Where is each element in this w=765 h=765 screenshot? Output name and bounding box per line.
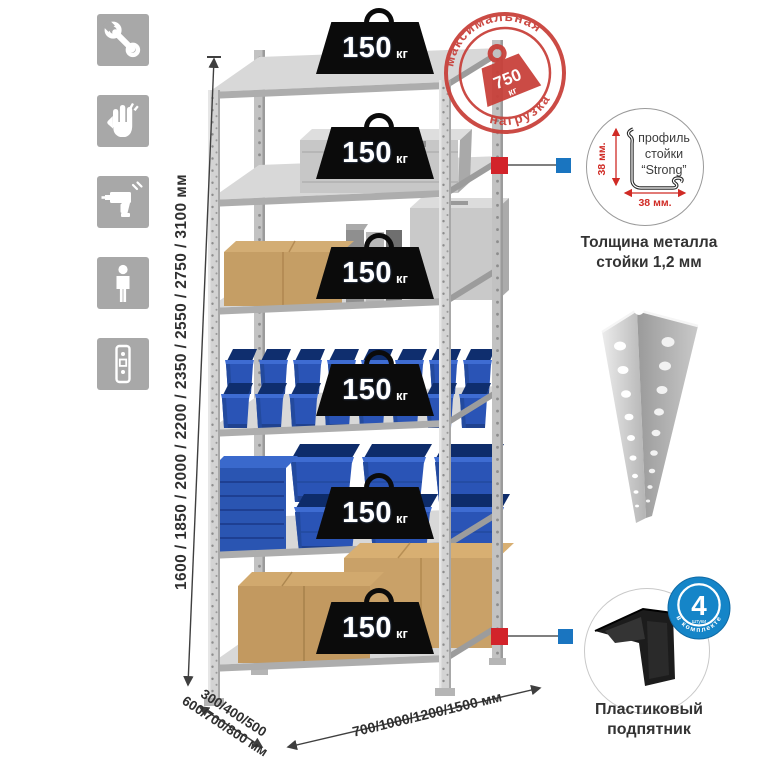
feature-tile-drill	[97, 176, 149, 228]
shelf-load-badge: 150 кг	[316, 364, 434, 416]
weight-icon: 150 кг	[316, 22, 434, 74]
load-unit: кг	[396, 626, 408, 641]
load-unit: кг	[396, 271, 408, 286]
weight-icon: 150 кг	[316, 127, 434, 179]
height-dimensions-label: 1600 / 1850 / 2000 / 2200 / 2350 / 2550 …	[173, 82, 193, 682]
profile-word1: профиль	[638, 131, 690, 145]
feature-tile-assembly	[97, 14, 149, 66]
foot-caption: Пластиковый подпятник	[556, 700, 742, 741]
weight-icon: 150 кг	[316, 602, 434, 654]
product-infographic: 150 кг 150 кг 150 кг 150 кг 150 кг	[0, 0, 765, 765]
load-value: 150	[342, 257, 392, 290]
callout-lines	[508, 165, 558, 636]
shelf-load-badge: 150 кг	[316, 127, 434, 179]
shelf-load-badge: 150 кг	[316, 247, 434, 299]
post-front-left	[204, 90, 224, 706]
weight-icon: 150 кг	[316, 247, 434, 299]
feature-tile-post	[97, 338, 149, 390]
load-value: 150	[342, 32, 392, 65]
drill-icon	[98, 177, 148, 227]
profile-word3: “Strong”	[641, 163, 686, 177]
profile-caption-line2: стойки 1,2 мм	[596, 254, 701, 271]
gloves-icon	[98, 96, 148, 146]
shelf-load-badge: 150 кг	[316, 22, 434, 74]
profile-dim-horizontal: 38 мм.	[638, 197, 671, 209]
load-value: 150	[342, 374, 392, 407]
rack-post-icon	[98, 339, 148, 389]
profile-word2: стойки	[645, 147, 683, 161]
wrench-icon	[98, 15, 148, 65]
weight-icon: 150 кг	[316, 364, 434, 416]
profile-dim-vertical: 38 мм.	[596, 142, 608, 175]
load-unit: кг	[396, 151, 408, 166]
profile-caption: Толщина металла стойки 1,2 мм	[556, 233, 742, 273]
foot-caption-line2: подпятник	[607, 721, 691, 738]
callout-marker-post	[491, 157, 508, 174]
profile-caption-line1: Толщина металла	[581, 234, 718, 251]
load-value: 150	[342, 612, 392, 645]
load-unit: кг	[396, 388, 408, 403]
callout-marker-foot	[491, 628, 508, 645]
count-sub: штуки	[692, 619, 706, 625]
feature-tile-gloves	[97, 95, 149, 147]
angle-post-image	[590, 298, 710, 543]
load-unit: кг	[396, 46, 408, 61]
load-unit: кг	[396, 511, 408, 526]
included-count-badge: 4 штуки в комплекте	[667, 576, 731, 640]
callout-target-post	[556, 158, 571, 173]
shelf-load-badge: 150 кг	[316, 487, 434, 539]
shelf-load-badge: 150 кг	[316, 602, 434, 654]
count-value: 4	[691, 590, 707, 621]
person-icon	[98, 258, 148, 308]
load-value: 150	[342, 137, 392, 170]
feature-tile-height	[97, 257, 149, 309]
post-profile-sketch: 38 мм. 38 мм. профиль стойки “Strong”	[587, 109, 703, 225]
callout-target-foot	[558, 629, 573, 644]
post-profile-detail: 38 мм. 38 мм. профиль стойки “Strong”	[586, 108, 704, 226]
foot-caption-line1: Пластиковый	[595, 701, 703, 718]
load-value: 150	[342, 497, 392, 530]
weight-icon: 150 кг	[316, 487, 434, 539]
